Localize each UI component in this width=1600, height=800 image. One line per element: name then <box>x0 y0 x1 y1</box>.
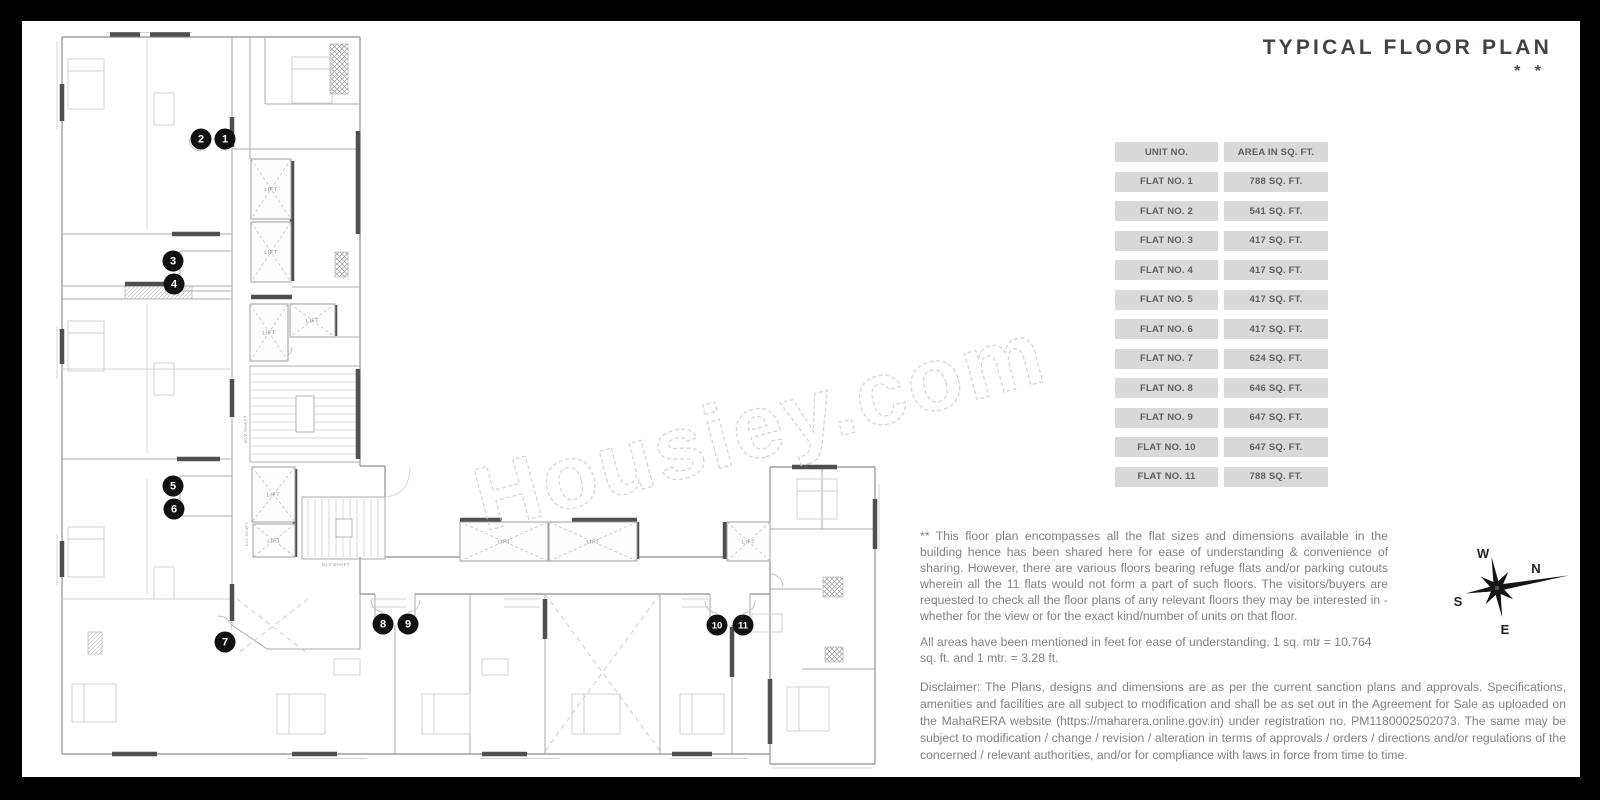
lift-shaft: LIFT <box>251 159 291 219</box>
table-unit-cell: FLAT NO. 1 <box>1115 172 1218 192</box>
area-conversion-note: All areas have been mentioned in feet fo… <box>920 634 1388 666</box>
unit-marker-number: 3 <box>170 256 176 268</box>
stairwell-core <box>250 366 360 462</box>
elv-shaft-label: ELV SHAFT <box>322 562 350 567</box>
compass-rose: W N S E <box>1432 522 1600 662</box>
table-area-cell: 417 SQ. FT. <box>1224 290 1328 310</box>
table-header-cell: AREA IN SQ. FT. <box>1224 142 1328 162</box>
plan-dark-walls <box>62 35 875 755</box>
unit-marker-number: 10 <box>712 621 723 632</box>
title-asterisks: * * <box>1263 63 1552 81</box>
plan-partitions <box>62 37 875 754</box>
compass-north-label: N <box>1531 561 1540 576</box>
unit-marker: 9 <box>398 614 419 635</box>
table-header-cell: UNIT NO. <box>1115 142 1218 162</box>
page-panel: LIFTLIFTLIFTLIFTLIFTLIFTLIFTLIFTLIFTELV … <box>22 21 1580 777</box>
table-unit-cell: FLAT NO. 9 <box>1115 408 1218 428</box>
unit-marker: 7 <box>215 632 236 653</box>
unit-marker-number: 8 <box>380 619 386 631</box>
table-unit-cell: FLAT NO. 10 <box>1115 437 1218 457</box>
lift-shaft: LIFT <box>290 304 335 337</box>
unit-marker-number: 9 <box>405 619 411 631</box>
lift-label: LIFT <box>262 331 275 337</box>
unit-marker-number: 1 <box>222 134 228 146</box>
lift-label: LIFT <box>306 319 319 325</box>
table-area-cell: 624 SQ. FT. <box>1224 349 1328 369</box>
title-block: TYPICAL FLOOR PLAN * * <box>1263 36 1552 81</box>
lift-shaft: LIFT <box>253 524 295 557</box>
unit-marker: 11 <box>733 615 754 636</box>
table-area-cell: 417 SQ. FT. <box>1224 319 1328 339</box>
table-area-cell: 417 SQ. FT. <box>1224 260 1328 280</box>
floor-plan-note: ** This floor plan encompasses all the f… <box>920 528 1388 624</box>
unit-marker-number: 6 <box>171 504 177 516</box>
table-unit-cell: FLAT NO. 3 <box>1115 231 1218 251</box>
lift-shaft: LIFT <box>460 522 548 561</box>
unit-marker: 4 <box>164 274 185 295</box>
plan-outer-walls <box>62 37 875 764</box>
table-unit-cell: FLAT NO. 8 <box>1115 378 1218 398</box>
unit-marker: 6 <box>164 499 185 520</box>
table-area-cell: 788 SQ. FT. <box>1224 172 1328 192</box>
unit-marker: 5 <box>163 476 184 497</box>
stairwell-lower <box>302 497 385 559</box>
lift-label: LIFT <box>742 540 755 546</box>
unit-marker-number: 2 <box>198 134 204 146</box>
table-area-cell: 541 SQ. FT. <box>1224 201 1328 221</box>
elv-shaft-label: ELV SHAFT <box>243 415 248 443</box>
unit-marker-number: 5 <box>170 481 176 493</box>
lift-shaft: LIFT <box>727 522 770 561</box>
unit-marker: 2 <box>191 129 212 150</box>
table-unit-cell: FLAT NO. 11 <box>1115 467 1218 487</box>
unit-marker-number: 11 <box>738 621 749 632</box>
table-area-cell: 417 SQ. FT. <box>1224 231 1328 251</box>
lift-shaft: LIFT <box>250 304 288 361</box>
disclaimer-note: Disclaimer: The Plans, designs and dimen… <box>920 679 1566 764</box>
plan-refuge-cross <box>237 594 660 751</box>
floor-plan-drawing: LIFTLIFTLIFTLIFTLIFTLIFTLIFTLIFTLIFTELV … <box>52 29 912 769</box>
lift-shaft: LIFT <box>549 522 637 561</box>
lift-shaft: LIFT <box>252 467 295 522</box>
unit-marker: 8 <box>373 614 394 635</box>
lift-label: LIFT <box>267 493 280 499</box>
compass-east-label: E <box>1501 622 1510 637</box>
table-unit-cell: FLAT NO. 7 <box>1115 349 1218 369</box>
unit-area-table: UNIT NO.AREA IN SQ. FT.FLAT NO. 1788 SQ.… <box>1115 142 1328 487</box>
unit-marker: 3 <box>163 251 184 272</box>
table-unit-cell: FLAT NO. 5 <box>1115 290 1218 310</box>
table-area-cell: 646 SQ. FT. <box>1224 378 1328 398</box>
lift-label: LIFT <box>497 540 510 546</box>
compass-south-label: S <box>1454 594 1463 609</box>
unit-marker-number: 7 <box>222 637 228 649</box>
plan-light-lines <box>57 33 879 769</box>
elv-shaft-label: ELV SHAFT <box>245 522 249 546</box>
lift-label: LIFT <box>586 540 599 546</box>
table-area-cell: 647 SQ. FT. <box>1224 408 1328 428</box>
table-unit-cell: FLAT NO. 4 <box>1115 260 1218 280</box>
lift-label: LIFT <box>264 250 277 256</box>
unit-marker: 1 <box>215 129 236 150</box>
lift-label: LIFT <box>264 187 277 193</box>
lift-shaft: LIFT <box>251 222 291 282</box>
table-unit-cell: FLAT NO. 6 <box>1115 319 1218 339</box>
page-title: TYPICAL FLOOR PLAN <box>1263 36 1552 60</box>
table-area-cell: 788 SQ. FT. <box>1224 467 1328 487</box>
lift-label: LIFT <box>267 539 280 545</box>
table-area-cell: 647 SQ. FT. <box>1224 437 1328 457</box>
unit-marker: 10 <box>707 615 728 636</box>
table-unit-cell: FLAT NO. 2 <box>1115 201 1218 221</box>
unit-marker-number: 4 <box>171 279 178 291</box>
compass-west-label: W <box>1477 546 1490 561</box>
